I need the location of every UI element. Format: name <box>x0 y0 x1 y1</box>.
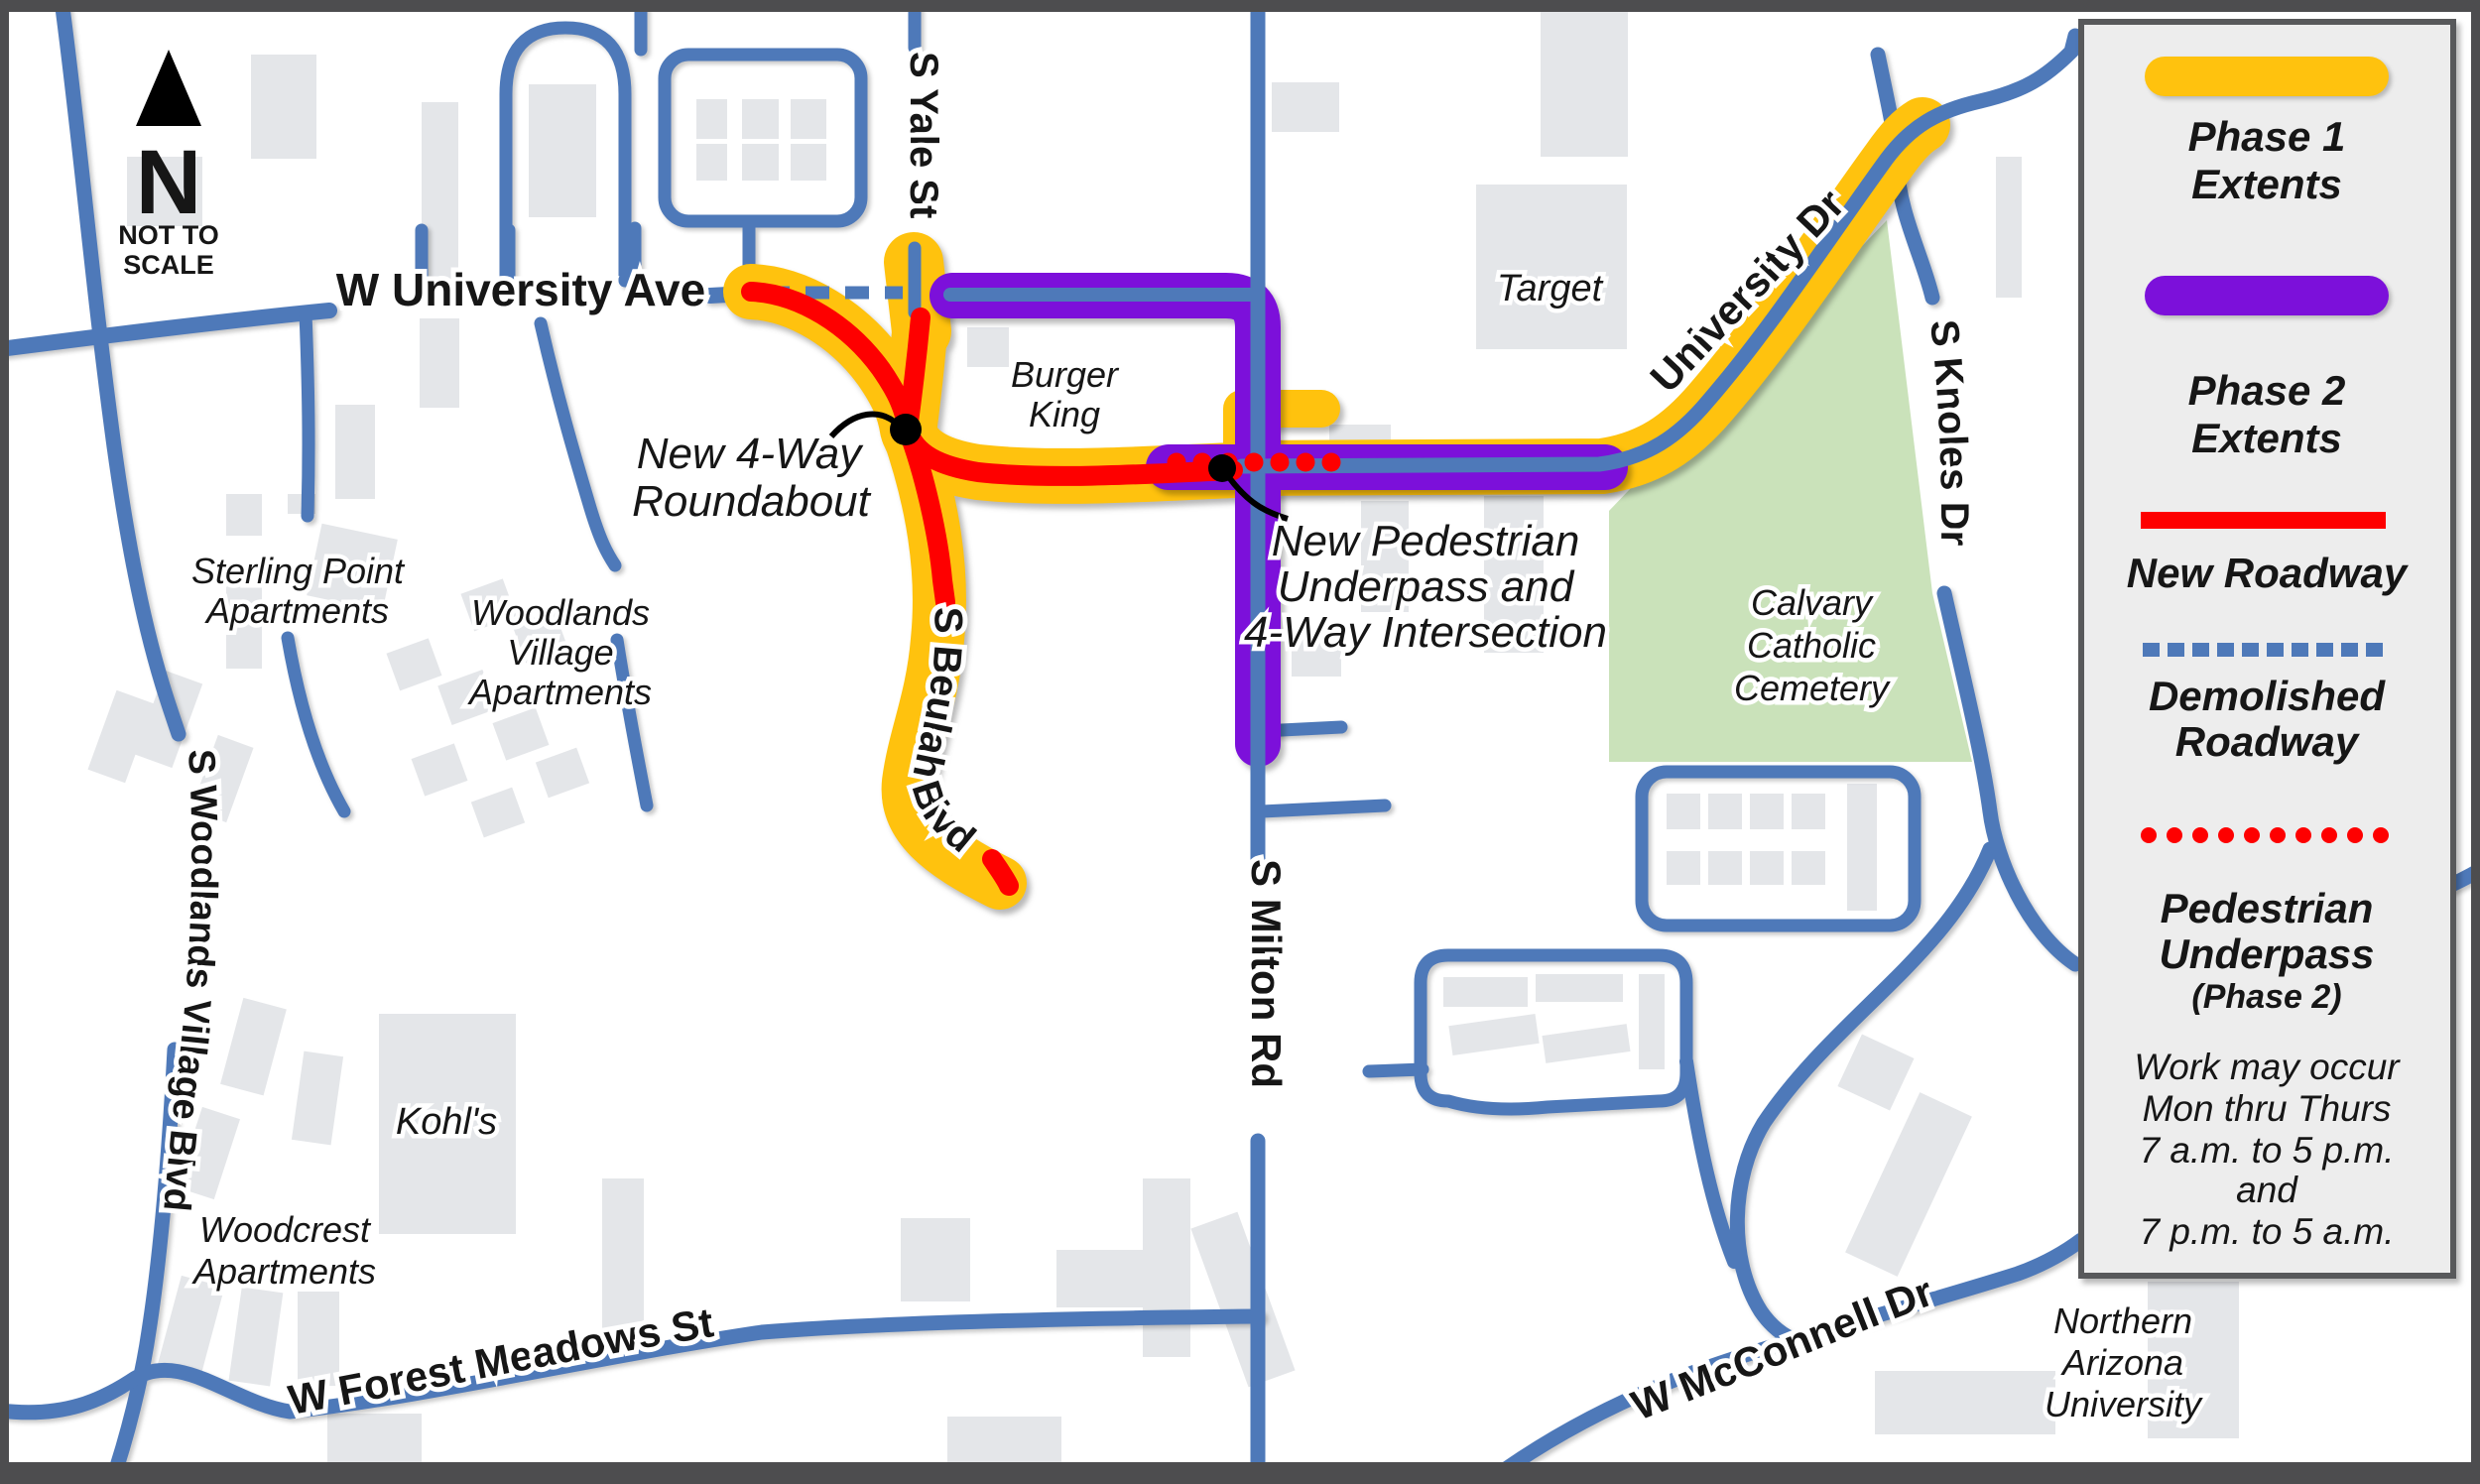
legend-dot <box>2321 827 2337 843</box>
legend-phase1-label-1: Phase 1 <box>2188 113 2346 160</box>
road-access <box>541 323 615 565</box>
north-note-line1: NOT TO <box>118 220 219 250</box>
label-nau-3: University <box>2045 1384 2203 1424</box>
underpass-dot <box>1271 453 1290 472</box>
building <box>1837 1034 1914 1110</box>
building <box>220 998 287 1096</box>
building <box>335 405 375 499</box>
legend-demolished-label-2: Roadway <box>2175 718 2361 765</box>
building <box>1845 1092 1972 1277</box>
legend-dot <box>2295 827 2311 843</box>
label-cemetery-3: Cemetery <box>1734 668 1891 708</box>
road-milton-stub <box>1262 805 1385 811</box>
legend-dot <box>2141 827 2157 843</box>
underpass-dot <box>1297 453 1315 472</box>
label-milton: S Milton Rd <box>1243 859 1290 1088</box>
building <box>420 318 459 408</box>
legend-dot <box>2347 827 2363 843</box>
road-access <box>306 313 309 516</box>
building <box>1639 974 1665 1069</box>
road-access <box>288 638 344 811</box>
legend-demolished-label-1: Demolished <box>2149 673 2386 719</box>
building <box>292 1051 343 1146</box>
anno-roundabout-1: New 4-Way <box>637 430 865 478</box>
anno-underpass-3: 4-Way Intersection <box>1244 608 1607 657</box>
building <box>1708 851 1742 885</box>
building <box>1190 1212 1295 1388</box>
building <box>1792 794 1825 829</box>
label-nau-1: Northern <box>2053 1300 2192 1341</box>
legend-note-4: and <box>2236 1170 2298 1210</box>
svg-text:W Forest Meadows St: W Forest Meadows St <box>285 1298 716 1423</box>
building <box>1847 784 1877 911</box>
frame-bottom <box>0 1462 2480 1484</box>
frame-right <box>2471 0 2480 1484</box>
legend-pedestrian-label-2: Underpass <box>2159 930 2374 977</box>
legend-note-1: Work may occur <box>2134 1047 2401 1087</box>
building <box>1667 851 1700 885</box>
legend: Phase 1 Extents Phase 2 Extents New Road… <box>2081 22 2453 1276</box>
label-woodlands-village-1: Woodlands <box>471 592 650 633</box>
legend-newroadway-label: New Roadway <box>2127 550 2410 596</box>
legend-phase1-label-2: Extents <box>2191 161 2342 207</box>
anno-underpass-1: New Pedestrian <box>1272 517 1580 565</box>
building <box>386 638 441 690</box>
legend-dot <box>2167 827 2182 843</box>
building <box>1541 10 1628 157</box>
building <box>226 494 262 536</box>
svg-text:S Milton Rd: S Milton Rd <box>1243 859 1290 1088</box>
label-cemetery-2: Catholic <box>1747 625 1876 666</box>
building <box>251 55 316 159</box>
underpass-dot <box>1245 453 1264 472</box>
legend-phase2-swatch <box>2145 276 2389 315</box>
label-cemetery-1: Calvary <box>1751 582 1874 623</box>
building <box>1542 1024 1630 1063</box>
building <box>493 707 550 760</box>
building <box>1750 851 1784 885</box>
building <box>791 99 826 139</box>
legend-newroadway-swatch <box>2141 512 2386 529</box>
label-burger-king-2: King <box>1029 394 1100 434</box>
marker-underpass <box>1208 454 1236 482</box>
building <box>967 327 1009 367</box>
label-target: Target <box>1497 268 1604 309</box>
road-access <box>617 640 647 805</box>
legend-dot <box>2373 827 2389 843</box>
building <box>412 743 468 796</box>
label-university-ave: W University Ave <box>336 264 705 315</box>
building <box>1272 82 1339 132</box>
north-letter: N <box>136 132 201 233</box>
label-woodcrest-2: Apartments <box>191 1251 376 1292</box>
building <box>1996 157 2022 298</box>
building <box>1448 1014 1539 1055</box>
building <box>471 788 525 838</box>
label-kohls: Kohl's <box>396 1101 497 1143</box>
project-map: N NOT TO SCALE W University Ave S Yale S… <box>0 0 2480 1484</box>
target-building <box>1476 185 1627 349</box>
building <box>696 144 727 181</box>
svg-text:S Yale St: S Yale St <box>902 52 945 218</box>
legend-pedestrian-label-1: Pedestrian <box>2161 885 2374 931</box>
label-woodcrest-1: Woodcrest <box>199 1209 372 1250</box>
label-burger-king-1: Burger <box>1011 354 1120 395</box>
north-arrow-icon <box>136 50 201 126</box>
legend-dot <box>2270 827 2286 843</box>
building <box>742 99 779 139</box>
legend-phase1-swatch <box>2145 57 2389 96</box>
legend-note-3: 7 a.m. to 5 p.m. <box>2139 1130 2394 1171</box>
legend-note-5: 7 p.m. to 5 a.m. <box>2139 1211 2394 1252</box>
road-loopb-drop <box>1686 1061 1734 1262</box>
svg-text:S Knoles Dr: S Knoles Dr <box>1922 317 1976 546</box>
road-university-ave-west <box>0 310 329 349</box>
building <box>1667 794 1700 829</box>
underpass-dot <box>1322 453 1341 472</box>
building <box>901 1218 970 1301</box>
new-roadway <box>751 292 1233 886</box>
building <box>1708 794 1742 829</box>
building <box>742 144 779 181</box>
underpass-dot <box>1168 453 1186 472</box>
anno-roundabout-2: Roundabout <box>632 477 872 526</box>
building <box>1875 1371 2055 1434</box>
building <box>1792 851 1825 885</box>
building <box>696 99 727 139</box>
legend-dot <box>2218 827 2234 843</box>
building <box>791 144 826 181</box>
building <box>536 748 589 799</box>
legend-note-2: Mon thru Thurs <box>2143 1088 2392 1129</box>
building <box>1536 974 1623 1002</box>
building <box>529 84 596 217</box>
legend-dot <box>2192 827 2208 843</box>
label-nau-2: Arizona <box>2060 1342 2183 1383</box>
legend-phase2-label-1: Phase 2 <box>2188 367 2346 414</box>
label-forest-meadows: W Forest Meadows St <box>285 1298 716 1423</box>
building <box>1750 794 1784 829</box>
building <box>1443 977 1528 1007</box>
legend-dot <box>2244 827 2260 843</box>
building <box>229 1288 284 1387</box>
label-yale: S Yale St <box>902 52 945 218</box>
label-sterling-1: Sterling Point <box>191 551 406 591</box>
anno-underpass-2: Underpass and <box>1278 562 1575 611</box>
legend-pedestrian-label-3: (Phase 2) <box>2191 978 2341 1016</box>
label-knoles: S Knoles Dr <box>1922 317 1976 546</box>
frame-left <box>0 0 9 1484</box>
new-roadway-north <box>908 317 921 430</box>
north-note-line2: SCALE <box>123 250 214 280</box>
marker-roundabout <box>890 414 922 445</box>
map-canvas: N NOT TO SCALE W University Ave S Yale S… <box>0 0 2480 1484</box>
legend-phase2-label-2: Extents <box>2191 415 2342 461</box>
label-woodlands-village-2: Village <box>507 632 613 673</box>
frame-top <box>0 0 2480 12</box>
label-sterling-2: Apartments <box>204 590 389 631</box>
building <box>1143 1178 1190 1357</box>
label-woodlands-village-3: Apartments <box>467 672 652 712</box>
